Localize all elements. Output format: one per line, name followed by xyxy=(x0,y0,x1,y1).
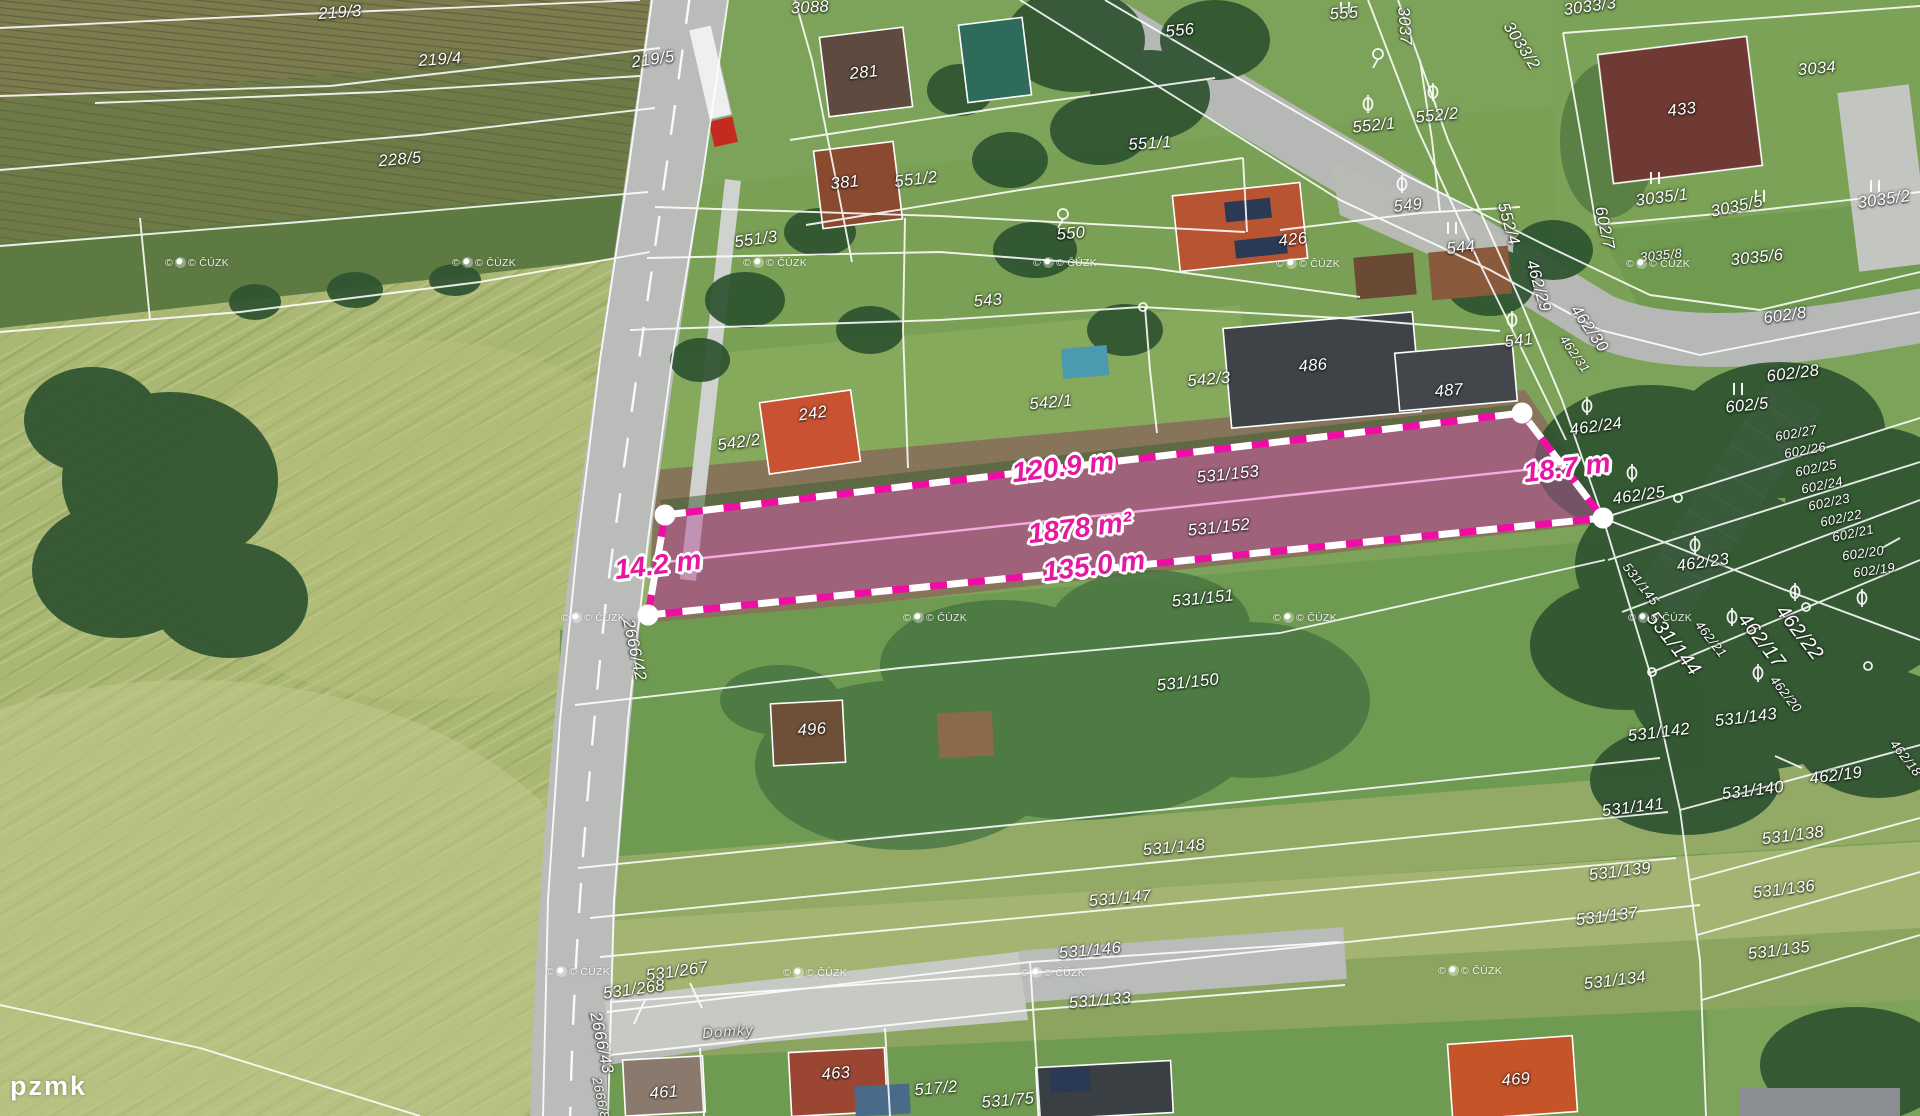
cuzk-logo-icon xyxy=(571,612,582,623)
pzmk-watermark: pzmk xyxy=(10,1071,87,1102)
parcel-number-label: 551/1 xyxy=(1128,133,1173,155)
cuzk-logo-icon xyxy=(556,966,567,977)
house-number-label: 281 xyxy=(849,62,880,84)
house-number-label: 426 xyxy=(1278,229,1309,251)
parcel-number-label: 556 xyxy=(1165,20,1196,42)
cuzk-logo-icon xyxy=(1448,965,1459,976)
cuzk-logo-icon xyxy=(1638,612,1649,623)
house-number-label: 469 xyxy=(1501,1069,1531,1090)
parcel-number-label: 228/5 xyxy=(378,149,423,172)
cuzk-logo-icon xyxy=(913,612,924,623)
parcel-number-label: 3037 xyxy=(1393,6,1415,46)
cuzk-copyright-watermark: ©© ČÚZK xyxy=(546,966,610,978)
cuzk-copyright-watermark: ©© ČÚZK xyxy=(1033,257,1097,269)
cuzk-copyright-watermark: ©© ČÚZK xyxy=(452,257,516,269)
house-number-label: 461 xyxy=(649,1082,679,1103)
parcel-number-label: 543 xyxy=(973,290,1003,311)
cuzk-copyright-watermark: ©© ČÚZK xyxy=(561,612,625,624)
house-number-label: 496 xyxy=(797,720,827,741)
house-number-label: 517/2 xyxy=(914,1078,959,1101)
cuzk-logo-icon xyxy=(175,257,186,268)
parcel-number-label: 542/3 xyxy=(1187,369,1232,392)
parcel-number-label: 219/3 xyxy=(318,2,363,24)
cuzk-logo-icon xyxy=(1286,258,1297,269)
parcel-number-label: 219/4 xyxy=(418,49,463,71)
parcel-number-label: 3034 xyxy=(1797,58,1837,80)
cuzk-copyright-watermark: ©© ČÚZK xyxy=(1628,612,1692,624)
parcel-number-label: 550 xyxy=(1056,223,1086,244)
cuzk-copyright-watermark: ©© ČÚZK xyxy=(1438,965,1502,977)
cuzk-copyright-watermark: ©© ČÚZK xyxy=(1273,612,1337,624)
cuzk-copyright-watermark: ©© ČÚZK xyxy=(903,612,967,624)
cuzk-logo-icon xyxy=(1043,257,1054,268)
parcel-number-label: 549 xyxy=(1393,195,1424,217)
cadastral-map: 219/3219/4228/5219/53088281381551/2551/3… xyxy=(0,0,1920,1116)
parcel-number-label: 541 xyxy=(1504,330,1535,352)
house-number-label: 463 xyxy=(821,1063,851,1084)
house-number-label: 381 xyxy=(830,172,861,194)
cuzk-copyright-watermark: ©© ČÚZK xyxy=(1276,258,1340,270)
house-number-label: 487 xyxy=(1434,380,1464,401)
parcel-number-label: 542/1 xyxy=(1029,392,1074,415)
parcel-number-label: 544 xyxy=(1446,237,1477,259)
cuzk-copyright-watermark: ©© ČÚZK xyxy=(783,967,847,979)
cuzk-logo-icon xyxy=(1283,612,1294,623)
aerial-base xyxy=(0,0,1920,1116)
cuzk-copyright-watermark: ©© ČÚZK xyxy=(165,257,229,269)
cuzk-logo-icon xyxy=(1636,258,1647,269)
cuzk-logo-icon xyxy=(793,967,804,978)
cuzk-copyright-watermark: ©© ČÚZK xyxy=(1626,258,1690,270)
house-number-label: 242 xyxy=(797,403,828,426)
house-number-label: 433 xyxy=(1667,99,1698,121)
cuzk-logo-icon xyxy=(753,257,764,268)
cuzk-logo-icon xyxy=(462,257,473,268)
parcel-number-label: 3088 xyxy=(790,0,829,18)
cuzk-copyright-watermark: ©© ČÚZK xyxy=(1021,967,1085,979)
house-number-label: 486 xyxy=(1298,355,1328,376)
parcel-number-label: 555 xyxy=(1329,4,1359,25)
cuzk-copyright-watermark: ©© ČÚZK xyxy=(743,257,807,269)
cuzk-logo-icon xyxy=(1031,967,1042,978)
street-name-label: Domky xyxy=(702,1022,755,1043)
